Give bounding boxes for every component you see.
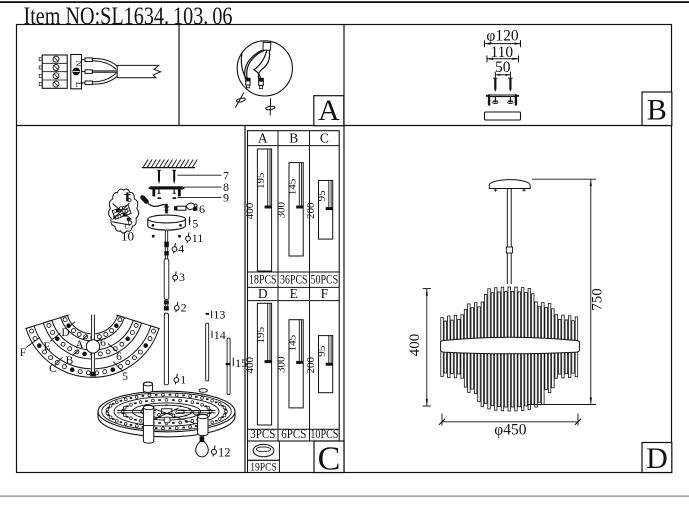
svg-text:5: 5 (122, 371, 128, 383)
svg-text:95: 95 (316, 345, 328, 357)
svg-text:F: F (20, 347, 26, 359)
svg-text:5: 5 (192, 216, 198, 230)
svg-text:6: 6 (199, 202, 205, 216)
svg-text:A: A (318, 94, 340, 127)
svg-text:D: D (646, 442, 668, 475)
svg-text:50: 50 (495, 59, 511, 76)
svg-text:195: 195 (255, 327, 267, 344)
svg-text:145: 145 (286, 334, 298, 351)
svg-text:4: 4 (178, 242, 184, 256)
svg-text:10PCS: 10PCS (310, 427, 338, 441)
svg-text:φ120: φ120 (486, 28, 518, 45)
svg-text:C: C (49, 363, 57, 375)
svg-text:C: C (318, 440, 341, 477)
svg-text:6: 6 (100, 337, 106, 349)
svg-text:13: 13 (213, 307, 225, 321)
svg-text:300: 300 (276, 202, 288, 219)
svg-text:N: N (74, 60, 84, 66)
svg-text:200: 200 (305, 202, 317, 219)
svg-text:3PCS: 3PCS (250, 427, 275, 441)
svg-text:11: 11 (192, 231, 204, 245)
svg-text:E: E (43, 341, 50, 353)
svg-text:F: F (321, 286, 329, 301)
svg-text:200: 200 (305, 356, 317, 373)
svg-text:19PCS: 19PCS (250, 459, 277, 473)
svg-text:3: 3 (179, 270, 185, 284)
svg-text:D: D (61, 327, 69, 339)
svg-text:B: B (289, 131, 298, 146)
svg-text:B: B (647, 93, 667, 126)
svg-text:9: 9 (223, 191, 229, 205)
svg-text:Item NO:SL1634. 103. 06: Item NO:SL1634. 103. 06 (24, 1, 233, 30)
svg-text:18PCS: 18PCS (249, 273, 277, 287)
svg-text:6: 6 (116, 351, 122, 363)
svg-text:195: 195 (255, 172, 267, 189)
svg-text:6PCS: 6PCS (281, 427, 306, 441)
svg-text:400: 400 (244, 356, 256, 373)
svg-text:D: D (258, 286, 268, 301)
svg-text:B: B (66, 355, 74, 367)
svg-text:14: 14 (214, 328, 226, 342)
svg-text:400: 400 (244, 202, 256, 219)
svg-text:750: 750 (590, 288, 606, 311)
svg-text:400: 400 (407, 334, 423, 357)
svg-text:95: 95 (316, 190, 328, 202)
svg-text:36PCS: 36PCS (280, 273, 308, 287)
svg-text:12: 12 (218, 446, 231, 460)
svg-text:300: 300 (276, 356, 288, 373)
svg-text:10: 10 (121, 229, 134, 244)
svg-text:A: A (75, 339, 84, 351)
svg-text:φ450: φ450 (494, 422, 526, 439)
svg-text:C: C (320, 131, 329, 146)
svg-text:1: 1 (180, 372, 186, 386)
svg-text:2: 2 (181, 300, 187, 314)
svg-text:E: E (290, 286, 298, 301)
svg-text:A: A (258, 131, 268, 146)
svg-text:145: 145 (286, 178, 298, 195)
svg-text:50PCS: 50PCS (311, 273, 339, 287)
